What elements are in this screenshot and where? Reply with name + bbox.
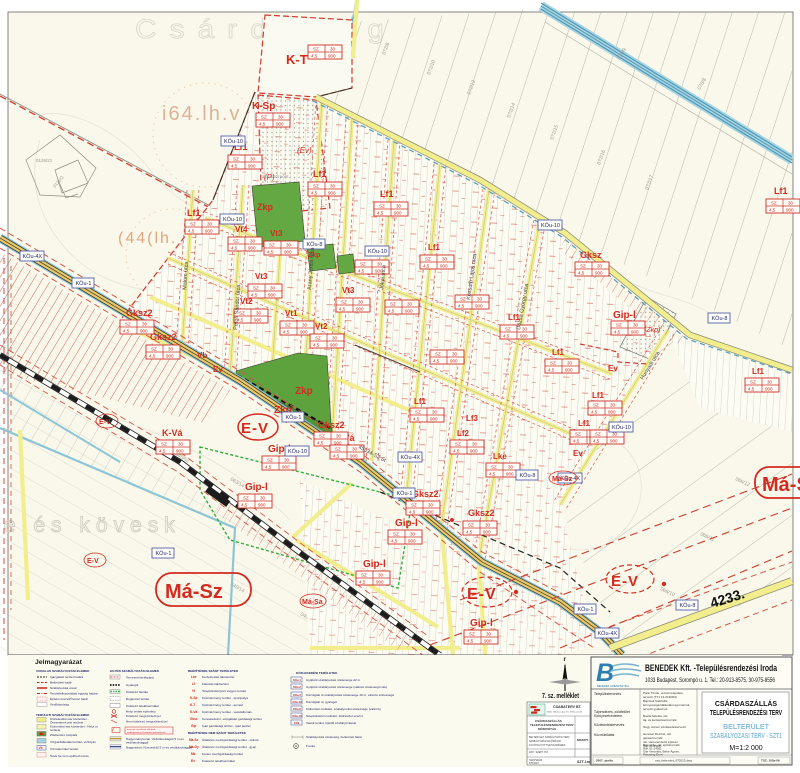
svg-text:Lf1: Lf1 xyxy=(774,186,788,196)
svg-text:E-V: E-V xyxy=(87,558,99,565)
svg-text:Ev: Ev xyxy=(213,365,223,374)
svg-text:Kötelező telekhasználat: Kötelező telekhasználat xyxy=(126,704,159,708)
svg-text:MSZ875: MSZ875 xyxy=(577,738,589,742)
svg-text:Kötelező telekhasználat: Kötelező telekhasználat xyxy=(202,759,235,763)
svg-text:Gyűjtőút szabályozási szélessé: Gyűjtőút szabályozási szélessége (változ… xyxy=(306,685,387,689)
svg-text:(Zkp): (Zkp) xyxy=(644,327,660,334)
svg-text:K-Vá: K-Vá xyxy=(162,428,183,438)
svg-text:Má-S: Má-S xyxy=(762,474,800,496)
svg-text:Zkp: Zkp xyxy=(257,202,274,212)
svg-text:Belterületi határ: Belterületi határ xyxy=(50,681,72,685)
svg-text:Lf1: Lf1 xyxy=(592,391,605,400)
svg-text:TSZ: 102a-06: TSZ: 102a-06 xyxy=(761,759,780,763)
svg-text:Má-Sa: Má-Sa xyxy=(302,599,323,606)
svg-text:BEÉPÍTÉSRE NEM SZÁNT TERÜLETEK: BEÉPÍTÉSRE NEM SZÁNT TERÜLETEK xyxy=(188,730,247,735)
svg-text:Szabályozási vonal: Szabályozási vonal xyxy=(50,686,77,690)
svg-text:táj- és kertépítészmérnök: táj- és kertépítészmérnök xyxy=(643,718,677,722)
svg-text:Településtervezés: Településtervezés xyxy=(594,692,621,696)
svg-text:2007. április: 2007. április xyxy=(596,759,614,763)
svg-text:Gksz: Gksz xyxy=(580,250,602,260)
svg-text:Má-Sz: Má-Sz xyxy=(165,581,223,603)
svg-text:Településközi mellékút, földré: Településközi mellékút, földrészlet szer… xyxy=(306,714,363,718)
svg-text:Jelmagyarázat: Jelmagyarázat xyxy=(35,659,83,666)
svg-text:CSABATERV BT.: CSABATERV BT. xyxy=(553,705,582,709)
svg-text:BEÉPÍTÉSRE SZÁNT TERÜLETEK: BEÉPÍTÉSRE SZÁNT TERÜLETEK xyxy=(188,668,239,673)
svg-text:Gip-l: Gip-l xyxy=(245,482,268,493)
svg-text:MÓDOSÍTÁS: MÓDOSÍTÁS xyxy=(538,726,556,731)
svg-text:Gip-l: Gip-l xyxy=(363,559,386,570)
svg-text:Ev: Ev xyxy=(608,364,618,373)
svg-text:Lf1: Lf1 xyxy=(752,367,765,376)
svg-text:Építési övezet/Övezet határ: Építési övezet/Övezet határ xyxy=(50,696,88,701)
svg-text:K-T: K-T xyxy=(190,703,195,707)
svg-text:Vt3: Vt3 xyxy=(255,272,268,281)
svg-text:Gip-l: Gip-l xyxy=(395,518,418,529)
svg-text:Ipari gazdasági terület - ipar: Ipari gazdasági terület - ipari terület xyxy=(202,724,251,728)
svg-text:Közintézmény terület - sportpá: Közintézmény terület - sportpálya xyxy=(202,696,248,700)
svg-text:szabályozási jel, beépítési pa: szabályozási jel, beépítési paraméterek xyxy=(127,731,166,734)
svg-text:Má-Gy: Má-Gy xyxy=(189,745,199,749)
svg-text:BELTERÜLET SZABÁLYOZÁSI TERV: BELTERÜLET SZABÁLYOZÁSI TERV xyxy=(529,736,570,739)
svg-text:SZABÁLYOZÁSI ELŐÍRÁSOK: SZABÁLYOZÁSI ELŐÍRÁSOK xyxy=(529,740,562,743)
svg-text:Lf1: Lf1 xyxy=(578,419,591,428)
svg-text:Vasúti terület, kijelölt szabá: Vasúti terület, kijelölt szabályozással xyxy=(306,721,356,725)
svg-text:Má-Sz: Má-Sz xyxy=(189,738,199,742)
svg-text:EGYÉB SZABÁLYOZÁSI ELEMEK: EGYÉB SZABÁLYOZÁSI ELEMEK xyxy=(110,668,160,673)
svg-text:TELEPÜLÉSRENDEZÉSI TERV: TELEPÜLÉSRENDEZÉSI TERV xyxy=(710,708,782,717)
svg-text:Lke: Lke xyxy=(493,452,507,461)
svg-text:Vb: Vb xyxy=(39,746,43,750)
svg-text:Nagy József, közlekedéstervező: Nagy József, közlekedéstervező xyxy=(643,725,686,729)
svg-text:Környezetvédelem: Környezetvédelem xyxy=(594,714,622,718)
svg-text:Vt2: Vt2 xyxy=(315,322,328,331)
svg-text:Külterületi mellékút, szabályo: Külterületi mellékút, szabályozási széle… xyxy=(306,707,381,711)
svg-text:1033 Budapest, Sorompó u. 1. T: 1033 Budapest, Sorompó u. 1. Tel.: 20-91… xyxy=(645,677,775,684)
svg-text:VONALAS SZABÁLYOZÁSI ELEMEK: VONALAS SZABÁLYOZÁSI ELEMEK xyxy=(36,668,90,673)
svg-text:Lf1: Lf1 xyxy=(552,348,565,357)
svg-text:(44(lh.: (44(lh. xyxy=(118,230,177,247)
svg-text:Lf1: Lf1 xyxy=(380,189,394,199)
svg-text:5600. Békéscsaba Tel.: 66/11-2: 5600. Békéscsaba Tel.: 66/11-22-33 xyxy=(547,712,583,714)
svg-text:Gksz2: Gksz2 xyxy=(412,489,439,499)
svg-text:területe: területe xyxy=(50,728,61,732)
svg-text:Igazgatási terület határa: Igazgatási terület határa xyxy=(50,675,83,679)
svg-text:Telek be nem építhető része: Telek be nem építhető része xyxy=(50,754,89,758)
svg-text:Vízcsatornául terület: Vízcsatornául terület xyxy=(50,747,78,751)
svg-text:Vt3: Vt3 xyxy=(270,229,283,238)
svg-text:Vb: Vb xyxy=(197,351,207,360)
svg-text:i64.lh.v: i64.lh.v xyxy=(162,103,241,125)
svg-text:Tervezett kerékpárút: Tervezett kerékpárút xyxy=(126,676,154,680)
svg-text:SZT-1m: SZT-1m xyxy=(577,760,590,764)
svg-text:K-Sp: K-Sp xyxy=(252,101,275,112)
svg-text:Lf1: Lf1 xyxy=(313,169,327,179)
svg-text:tervező gyakornok: tervező gyakornok xyxy=(643,707,668,711)
svg-text:Lf1: Lf1 xyxy=(187,208,201,218)
svg-text:Kiszolgáló út, gyalogút: Kiszolgáló út, gyalogút xyxy=(306,700,337,704)
svg-text:E-V: E-V xyxy=(241,420,269,437)
svg-text:Vt4: Vt4 xyxy=(235,225,248,234)
svg-text:K-Vá: K-Vá xyxy=(190,710,197,714)
svg-text:Lf1: Lf1 xyxy=(428,243,441,252)
svg-text:E-V: E-V xyxy=(611,573,639,590)
svg-text:Lf3: Lf3 xyxy=(466,414,479,423)
svg-text:Gip-l: Gip-l xyxy=(613,310,636,321)
svg-text:Zöldterület, közpark: Zöldterület, közpark xyxy=(50,733,78,737)
svg-text:BENEDEK URBANISZTIKA: BENEDEK URBANISZTIKA xyxy=(597,684,629,688)
svg-text:Vt3: Vt3 xyxy=(342,286,355,295)
svg-text:Területfelhasználási egység ha: Területfelhasználási egység határa xyxy=(50,692,98,696)
svg-text:Kiszolgáló út szabályozási szé: Kiszolgáló út szabályozási szélessége 16… xyxy=(306,693,394,697)
svg-text:Védőtávolság: Védőtávolság xyxy=(50,703,69,707)
svg-text:K-Sp: K-Sp xyxy=(190,696,197,700)
svg-text:Nagyvédett: Kivezetődő 5 m-es: Nagyvédett: Kivezetődő 5 m-es védőtávols… xyxy=(126,746,193,750)
svg-text:Közműellátás: Közműellátás xyxy=(594,733,615,737)
svg-text:Mk: Mk xyxy=(191,752,196,756)
svg-text:Közintézmény terület - vasútál: Közintézmény terület - vasútállomás xyxy=(202,710,252,714)
svg-text:Lf1: Lf1 xyxy=(414,397,427,406)
svg-text:Zkp: Zkp xyxy=(295,386,313,397)
svg-text:BELTERÜLET: BELTERÜLET xyxy=(723,722,769,731)
svg-text:Forrás: Forrás xyxy=(306,744,315,748)
svg-text:Lke: Lke xyxy=(191,675,197,679)
svg-text:Prinzcing Éron: Prinzcing Éron xyxy=(643,752,663,757)
svg-text:Má-Sz: Má-Sz xyxy=(552,476,573,483)
svg-text:Nem kötelező megszűntető jel: Nem kötelező megszűntető jel xyxy=(126,720,168,724)
svg-text:875/2007: 875/2007 xyxy=(529,762,540,765)
svg-text:(Ev): (Ev) xyxy=(297,146,312,155)
svg-text:K-T: K-T xyxy=(286,52,308,67)
svg-text:Kötelező megszűntető jel: Kötelező megszűntető jel xyxy=(126,714,161,718)
svg-text:Gip-l: Gip-l xyxy=(470,618,493,629)
svg-text:Kertvárosias lakóterület: Kertvárosias lakóterület xyxy=(202,675,234,679)
svg-text:BENEDEK Kft. -Településrendezé: BENEDEK Kft. -Településrendezési Iroda xyxy=(645,663,778,674)
svg-text:övezetre vonatkozó előírások: övezetre vonatkozó előírások xyxy=(127,728,156,731)
svg-text:Kereskedelmi, szolgáltató gazd: Kereskedelmi, szolgáltató gazdasági terü… xyxy=(202,717,262,721)
svg-text:Gyalogút: Gyalogút xyxy=(126,683,139,687)
svg-text:Gksz2: Gksz2 xyxy=(318,420,345,430)
svg-text:Településközpont vegyes terüle: Településközpont vegyes terület xyxy=(202,689,246,693)
svg-text:Vízgazdálkodási terület, vízfo: Vízgazdálkodási terület, vízfolyás xyxy=(50,740,96,744)
svg-text:Ev: Ev xyxy=(191,759,195,763)
svg-text:Gksz2: Gksz2 xyxy=(126,308,153,318)
svg-text:0126/21: 0126/21 xyxy=(36,158,53,163)
svg-text:Gksz2: Gksz2 xyxy=(468,508,495,518)
svg-text:E-V: E-V xyxy=(467,586,497,603)
svg-text:Általános mezőgazdasági terüle: Általános mezőgazdasági terület - gyep xyxy=(202,745,256,749)
svg-text:védőtávolsággal: védőtávolsággal xyxy=(126,741,149,745)
svg-text:B: B xyxy=(596,659,614,687)
svg-text:SZABÁLYOZÁSI TERV - SZT1: SZABÁLYOZÁSI TERV - SZT1 xyxy=(710,731,782,740)
svg-text:Falusias lakóterület: Falusias lakóterület xyxy=(202,682,229,686)
svg-text:Gksz: Gksz xyxy=(190,717,198,721)
svg-text:Közlekedéstervezés: Közlekedéstervezés xyxy=(594,723,625,727)
svg-text:Vt1: Vt1 xyxy=(285,309,298,318)
svg-text:Gip: Gip xyxy=(191,724,196,728)
svg-text:7. sz. melléklet: 7. sz. melléklet xyxy=(542,691,579,700)
svg-text:M=1:2 000: M=1:2 000 xyxy=(729,745,762,752)
svg-text:CSÁRDASZÁLLÁS: CSÁRDASZÁLLÁS xyxy=(715,699,778,708)
svg-text:2007. SZEPT. HÓ: 2007. SZEPT. HÓ xyxy=(529,751,548,754)
svg-text:E-V: E-V xyxy=(99,419,111,426)
svg-text:Szabályozási szélesség, belter: Szabályozási szélesség, belterületi hatá… xyxy=(306,735,362,739)
svg-text:Régészeti terület: Régészeti terület xyxy=(126,697,149,701)
svg-text:csa_belterulet_070523.dwg: csa_belterulet_070523.dwg xyxy=(655,759,692,763)
svg-text:Általános mezőgazdasági terüle: Általános mezőgazdasági terület - szántó xyxy=(202,738,259,742)
svg-text:Helyi védett építmény: Helyi védett építmény xyxy=(126,710,156,714)
svg-text:JÓVÁHAGYOTT MUNKARÉSZEK: JÓVÁHAGYOTT MUNKARÉSZEK xyxy=(529,744,566,747)
svg-text:Sportközpont: Sportközpont xyxy=(262,174,289,179)
svg-text:Kertes mezőgazdasági terület: Kertes mezőgazdasági terület xyxy=(202,752,243,756)
svg-text:Közintézmény terület - temető: Közintézmény terület - temető xyxy=(202,703,243,707)
svg-text:Lf2: Lf2 xyxy=(457,429,470,438)
svg-text:Kötelező fásítás: Kötelező fásítás xyxy=(126,690,148,694)
svg-text:Ev: Ev xyxy=(573,449,583,458)
svg-text:Gyűjtőút szabályozási szélessé: Gyűjtőút szabályozási szélessége 22 m xyxy=(306,678,361,682)
svg-text:KÖZLEKEDÉSI TERÜLETEK: KÖZLEKEDÉSI TERÜLETEK xyxy=(296,670,338,675)
